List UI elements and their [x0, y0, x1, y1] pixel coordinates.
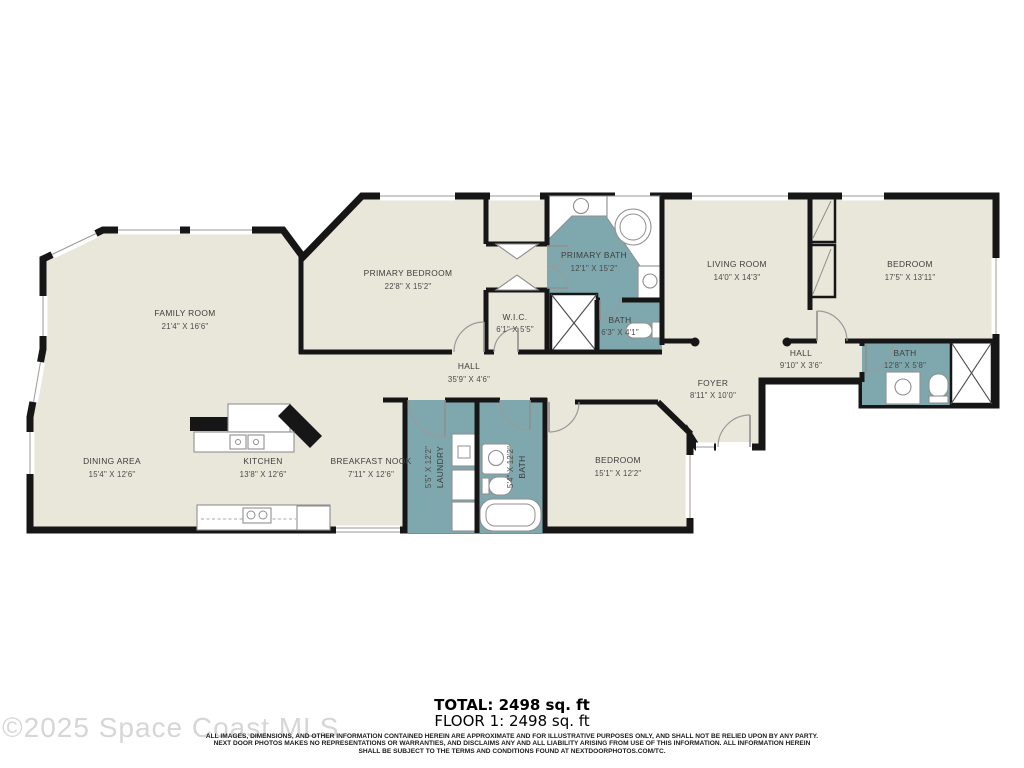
bath-right-toilet-tank — [929, 396, 948, 403]
svg-text:6'1" X 5'5": 6'1" X 5'5" — [496, 325, 534, 334]
disclaimer-line-2: NEXT DOOR PHOTOS MAKES NO REPRESENTATION… — [0, 740, 1024, 747]
washer-icon — [452, 470, 477, 500]
label-family-room: FAMILY ROOM — [154, 308, 215, 318]
svg-text:8'11" X 10'0": 8'11" X 10'0" — [690, 391, 736, 400]
label-hall-main: HALL — [458, 361, 480, 371]
disclaimer-text: ALL IMAGES, DIMENSIONS, AND OTHER INFORM… — [0, 733, 1024, 755]
column-post-right — [783, 338, 792, 347]
label-bath-right: BATH — [893, 348, 916, 358]
bath-right-sink-icon — [895, 379, 911, 395]
label-dining-area: DINING AREA — [83, 456, 141, 466]
label-hall-right: HALL — [790, 348, 812, 358]
label-breakfast-nook: BREAKFAST NOOK — [330, 456, 411, 466]
disclaimer-line-1: ALL IMAGES, DIMENSIONS, AND OTHER INFORM… — [0, 733, 1024, 740]
wc-toilet-tank — [652, 322, 660, 338]
svg-text:15'4" X 12'6": 15'4" X 12'6" — [89, 470, 136, 479]
label-wic: W.I.C. — [503, 312, 528, 322]
label-bath-primary-wc: BATH — [608, 315, 631, 325]
svg-text:15'1" X 12'2": 15'1" X 12'2" — [595, 469, 642, 478]
svg-text:12'8" X 5'8": 12'8" X 5'8" — [884, 361, 926, 370]
svg-text:6'3" X 4'1": 6'3" X 4'1" — [601, 328, 639, 337]
kitchen-appliance — [297, 506, 330, 530]
label-primary-bath: PRIMARY BATH — [561, 250, 627, 260]
label-bedroom-upper: BEDROOM — [887, 259, 933, 269]
floor-plan-drawing: FAMILY ROOM 21'4" X 16'6" PRIMARY BEDROO… — [0, 0, 1024, 768]
svg-text:7'11" X 12'6": 7'11" X 12'6" — [348, 470, 394, 479]
svg-text:14'0" X 14'3": 14'0" X 14'3" — [714, 273, 761, 282]
label-living-room: LIVING ROOM — [707, 259, 767, 269]
kitchen-sink-right — [248, 435, 264, 449]
laundry-sink — [452, 434, 477, 466]
primary-bath-sink-right-icon — [643, 274, 657, 288]
label-laundry: LAUNDRY — [435, 446, 445, 488]
floor-plan-page: FAMILY ROOM 21'4" X 16'6" PRIMARY BEDROO… — [0, 0, 1024, 768]
svg-text:17'5" X 13'11": 17'5" X 13'11" — [885, 273, 936, 282]
label-bedroom-lower: BEDROOM — [595, 455, 641, 465]
label-kitchen: KITCHEN — [243, 456, 282, 466]
disclaimer-line-3: SHALL BE SUBJECT TO THE TERMS AND CONDIT… — [0, 748, 1024, 755]
svg-text:35'9" X 4'6": 35'9" X 4'6" — [448, 375, 490, 384]
svg-text:12'1" X 15'2": 12'1" X 15'2" — [571, 264, 618, 273]
front-door-opening — [716, 442, 752, 452]
bath-right-toilet-bowl-icon — [929, 374, 948, 397]
label-bath-lower: BATH — [517, 455, 527, 478]
svg-text:9'10" X 3'6": 9'10" X 3'6" — [780, 361, 822, 370]
kitchen-sink-left — [230, 435, 246, 449]
bath-lower-toilet-tank — [482, 478, 489, 494]
dryer-icon — [452, 502, 477, 531]
column-post-left — [691, 338, 700, 347]
label-primary-bedroom: PRIMARY BEDROOM — [364, 268, 453, 278]
primary-bath-sink-left-icon — [574, 199, 589, 214]
label-foyer: FOYER — [698, 378, 729, 388]
svg-text:5'5" X 12'2": 5'5" X 12'2" — [424, 446, 433, 488]
kitchen-island-wall — [190, 417, 228, 431]
svg-text:21'4" X 16'6": 21'4" X 16'6" — [162, 322, 209, 331]
total-area-text: TOTAL: 2498 sq. ft — [0, 697, 1024, 713]
svg-text:5'4" X 12'2": 5'4" X 12'2" — [506, 446, 515, 488]
svg-text:22'8" X 15'2": 22'8" X 15'2" — [385, 282, 432, 291]
svg-text:13'8" X 12'6": 13'8" X 12'6" — [240, 470, 287, 479]
bath-lower-sink-icon — [489, 451, 504, 466]
floor1-area-text: FLOOR 1: 2498 sq. ft — [0, 713, 1024, 729]
footer: TOTAL: 2498 sq. ft FLOOR 1: 2498 sq. ft … — [0, 697, 1024, 755]
